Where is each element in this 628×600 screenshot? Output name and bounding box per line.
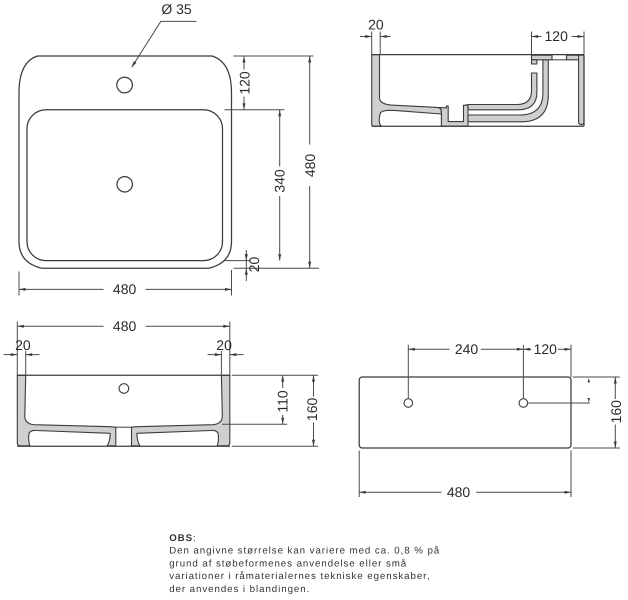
svg-text:110: 110 [274, 390, 290, 413]
svg-text:variationer i råmaterialernes: variationer i råmaterialernes tekniske e… [169, 571, 430, 582]
svg-text:120: 120 [236, 71, 252, 95]
svg-text:20: 20 [246, 257, 262, 273]
svg-text:grund af støbeformenes anvende: grund af støbeformenes anvendelse eller … [169, 558, 407, 569]
svg-text:20: 20 [15, 337, 31, 353]
svg-text:120: 120 [534, 341, 558, 357]
svg-text:480: 480 [113, 318, 137, 334]
svg-text:480: 480 [113, 281, 137, 297]
svg-text:480: 480 [447, 484, 471, 500]
svg-text:der anvendes i blandingen.: der anvendes i blandingen. [169, 584, 310, 595]
svg-text:480: 480 [302, 154, 318, 178]
svg-text:120: 120 [545, 28, 569, 44]
svg-text:240: 240 [455, 341, 479, 357]
svg-text:160: 160 [304, 398, 320, 422]
svg-text:Den angivne størrelse kan vari: Den angivne størrelse kan variere med ca… [169, 546, 440, 557]
svg-text:20: 20 [216, 337, 232, 353]
svg-text:340: 340 [271, 169, 287, 193]
svg-text:20: 20 [368, 17, 384, 33]
svg-text:160: 160 [608, 400, 624, 424]
svg-text:Ø 35: Ø 35 [161, 1, 192, 17]
svg-text:OBS:: OBS: [169, 533, 197, 544]
